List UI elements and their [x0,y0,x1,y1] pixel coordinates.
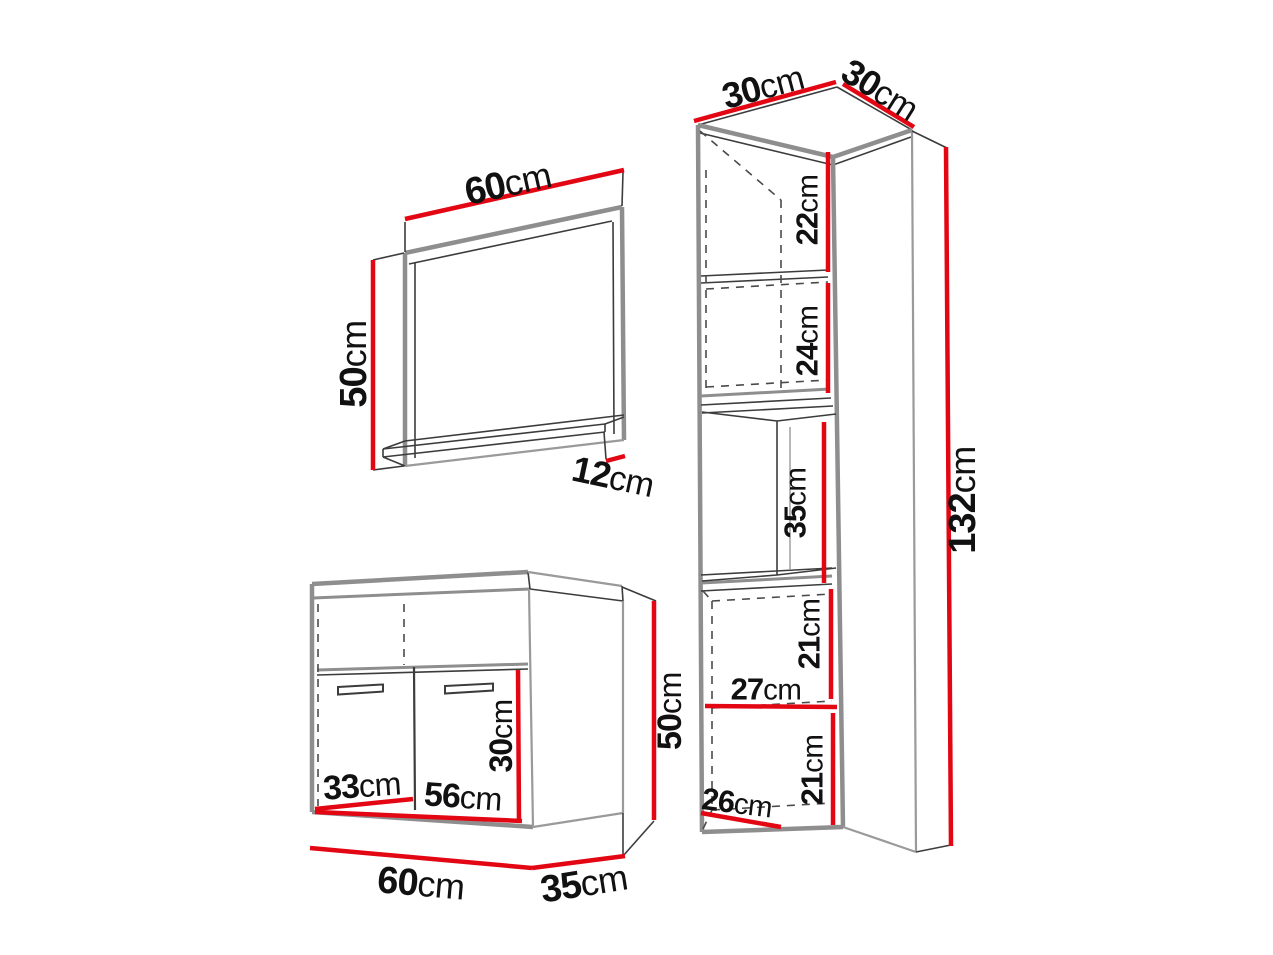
dim-unit: cm [763,673,801,706]
dim-unit: cm [652,672,688,714]
dim-value: 35 [538,864,584,912]
dim-unit: cm [333,320,374,367]
extension-line [912,131,947,148]
outline-line [702,406,833,413]
outline-line [777,414,836,421]
dim-value: 26 [700,781,737,820]
dim-unit: cm [577,856,630,904]
dim-unit: cm [779,468,812,506]
mirror-drawing [373,170,625,470]
outline-line [530,589,623,601]
dim-label-tall-inner-width: 27cm [731,673,802,704]
hidden-line [703,591,712,601]
hidden-line [706,282,828,289]
dim-label-tall-top-section: 22cm [791,175,822,246]
vanity-drawing [310,572,656,868]
dim-label-vanity-door-width: 33cm [322,766,402,805]
dim-unit: cm [358,765,402,804]
outline-line [700,133,833,165]
dim-unit: cm [793,599,826,637]
dim-value: 27 [731,671,763,706]
dim-label-tall-second-section: 24cm [791,306,822,377]
outline-line [409,221,612,264]
extension-line [623,821,654,856]
outline-line [405,415,624,441]
outline-line [528,572,622,586]
dim-value: 21 [791,637,826,669]
dim-value: 33 [322,767,360,807]
outline-line [312,572,528,584]
dim-value: 30 [483,739,519,773]
dim-value: 24 [789,344,824,376]
outline-line [701,270,828,276]
dim-value: 50 [333,367,375,407]
outline-line [698,125,702,832]
dim-value: 21 [794,773,829,805]
dim-value: 60 [376,859,420,904]
outline-line [701,389,830,396]
dim-unit: cm [485,699,519,739]
extension-line [373,466,404,470]
dim-label-vanity-width: 60cm [376,861,466,906]
dim-unit: cm [459,779,503,818]
outline-line [833,130,912,157]
outline-line [533,813,623,827]
outline-line [622,586,623,601]
dim-label-vanity-inner-width: 56cm [423,777,503,816]
dim-label-tall-fifth-section: 21cm [796,735,827,806]
extension-line [622,172,623,206]
dim-label-vanity-inner-height: 30cm [485,699,517,772]
outline-line [383,457,405,466]
dim-value: 35 [777,506,812,538]
dim-label-mirror-height: 50cm [335,320,373,407]
dim-label-tall-height: 132cm [944,446,982,554]
dim-label-vanity-height: 50cm [653,672,687,750]
door-handle [445,684,493,694]
door-handle [338,685,383,695]
outline-line [701,277,828,283]
outline-line [843,827,916,852]
dim-value: 56 [423,775,461,815]
hidden-line [706,380,828,387]
dim-unit: cm [732,787,774,824]
outline-line [414,667,415,810]
dim-unit: cm [791,306,824,344]
dim-unit: cm [791,175,824,213]
furniture-dimension-diagram: 60cm 50cm 12cm 33cm 56cm 30cm 50cm 60cm … [0,0,1273,955]
dim-label-tall-open-niche: 35cm [779,468,810,539]
outline-line [529,589,533,827]
extension-line [373,253,404,260]
outline-line [698,125,833,157]
dim-unit: cm [416,863,466,908]
outline-line [701,398,831,405]
outline-line [528,572,530,589]
dim-value: 50 [651,714,689,750]
outline-line [701,584,832,591]
dim-unit: cm [796,735,829,773]
outline-line [622,207,624,440]
dim-unit: cm [942,446,983,493]
outline-line [702,412,777,421]
extension-line [622,587,656,601]
dim-label-tall-fourth-section: 21cm [793,599,824,670]
extension-line [916,845,951,852]
outline-line [613,222,614,434]
dim-value: 22 [789,213,824,245]
outline-line [313,589,530,598]
dim-value: 132 [942,493,984,553]
outline-line [912,130,916,852]
